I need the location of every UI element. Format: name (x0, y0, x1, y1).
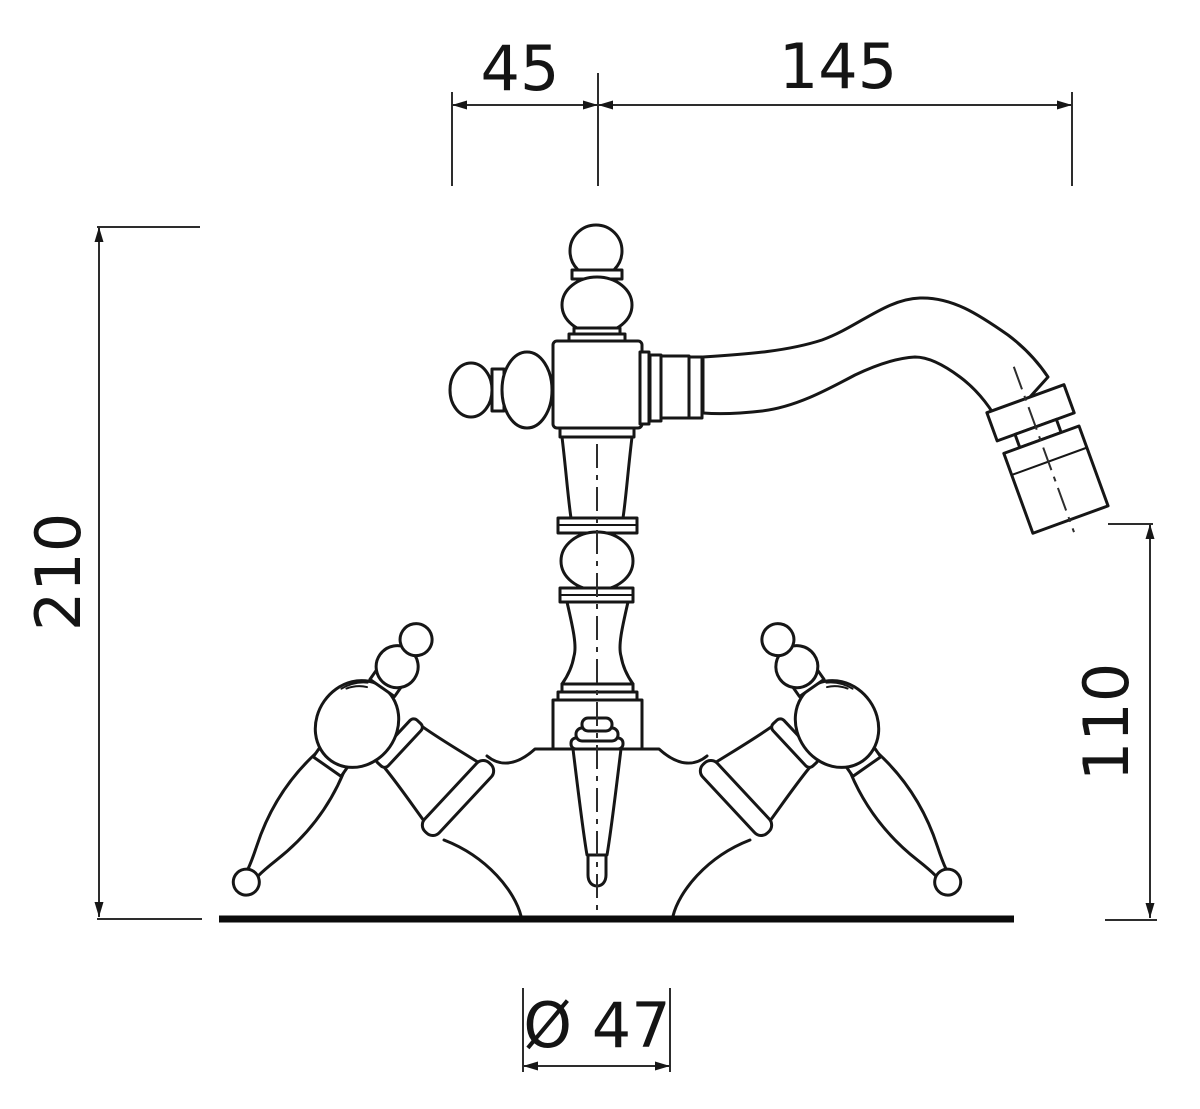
finial-mid-ball (562, 277, 632, 333)
dim-outlet-height: 110 (1070, 524, 1157, 920)
side-knob (502, 352, 552, 428)
dim-base-diameter: Ø 47 (523, 988, 671, 1072)
body-block (553, 341, 642, 428)
faucet-drawing (206, 225, 1112, 919)
drawing-canvas: 45 145 210 110 Ø 47 (0, 0, 1200, 1109)
dim-210-label: 210 (22, 513, 95, 631)
dim-110-label: 110 (1070, 663, 1143, 781)
upper-body (450, 225, 642, 428)
dim-45-label: 45 (481, 32, 560, 105)
spout (640, 298, 1113, 546)
dim-top-offset: 45 145 (452, 30, 1072, 186)
side-knob-ball (450, 363, 492, 417)
dim-diameter-label: Ø 47 (523, 989, 670, 1062)
dim-overall-height: 210 (22, 227, 202, 919)
dim-145-label: 145 (779, 30, 897, 103)
technical-drawing: 45 145 210 110 Ø 47 (0, 0, 1200, 1109)
